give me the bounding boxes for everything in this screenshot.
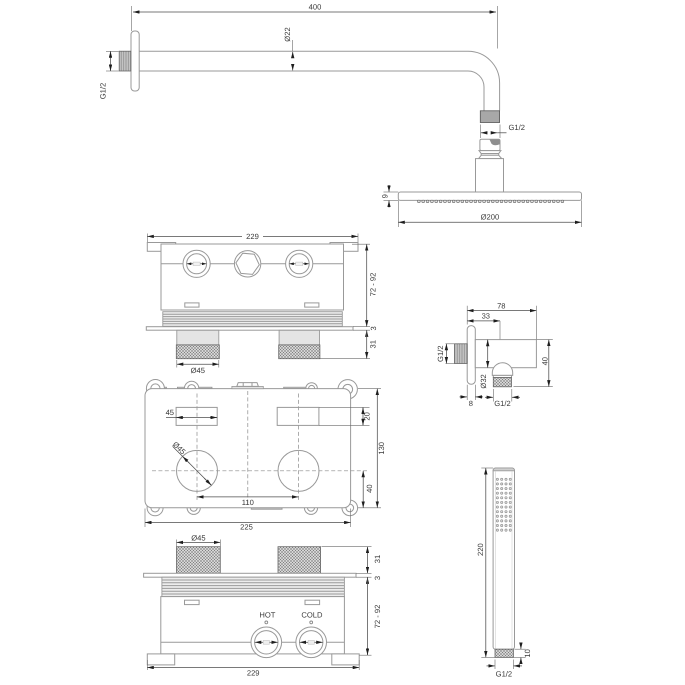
svg-text:Ø45: Ø45 xyxy=(191,366,205,375)
svg-text:78: 78 xyxy=(497,301,505,310)
svg-text:Ø45: Ø45 xyxy=(191,534,205,543)
svg-text:31: 31 xyxy=(373,555,382,563)
svg-text:8: 8 xyxy=(469,399,473,408)
svg-text:9: 9 xyxy=(381,194,390,198)
svg-text:72 - 92: 72 - 92 xyxy=(369,273,378,297)
svg-text:HOT: HOT xyxy=(259,611,275,620)
svg-text:10: 10 xyxy=(523,649,532,657)
svg-text:COLD: COLD xyxy=(301,611,323,620)
svg-text:400: 400 xyxy=(309,2,322,11)
svg-text:72 - 92: 72 - 92 xyxy=(373,605,382,629)
svg-text:130: 130 xyxy=(377,442,386,455)
svg-text:225: 225 xyxy=(240,522,253,531)
svg-text:G1/2: G1/2 xyxy=(99,83,108,99)
svg-text:229: 229 xyxy=(247,668,260,677)
svg-text:33: 33 xyxy=(482,312,490,321)
svg-text:3: 3 xyxy=(369,326,378,330)
svg-text:3: 3 xyxy=(373,576,382,580)
svg-text:Ø22: Ø22 xyxy=(283,27,292,41)
svg-text:110: 110 xyxy=(242,498,254,507)
svg-text:31: 31 xyxy=(369,340,378,348)
svg-text:20: 20 xyxy=(363,412,372,420)
svg-text:220: 220 xyxy=(476,543,485,556)
svg-text:40: 40 xyxy=(365,484,374,492)
svg-text:229: 229 xyxy=(246,232,259,241)
svg-text:45: 45 xyxy=(166,408,174,417)
svg-text:40: 40 xyxy=(540,357,549,365)
svg-text:G1/2: G1/2 xyxy=(494,399,510,408)
svg-text:Ø32: Ø32 xyxy=(479,374,488,388)
svg-text:G1/2: G1/2 xyxy=(509,123,525,132)
svg-text:Ø200: Ø200 xyxy=(481,213,500,222)
svg-text:G1/2: G1/2 xyxy=(436,345,445,361)
svg-text:G1/2: G1/2 xyxy=(496,669,512,678)
